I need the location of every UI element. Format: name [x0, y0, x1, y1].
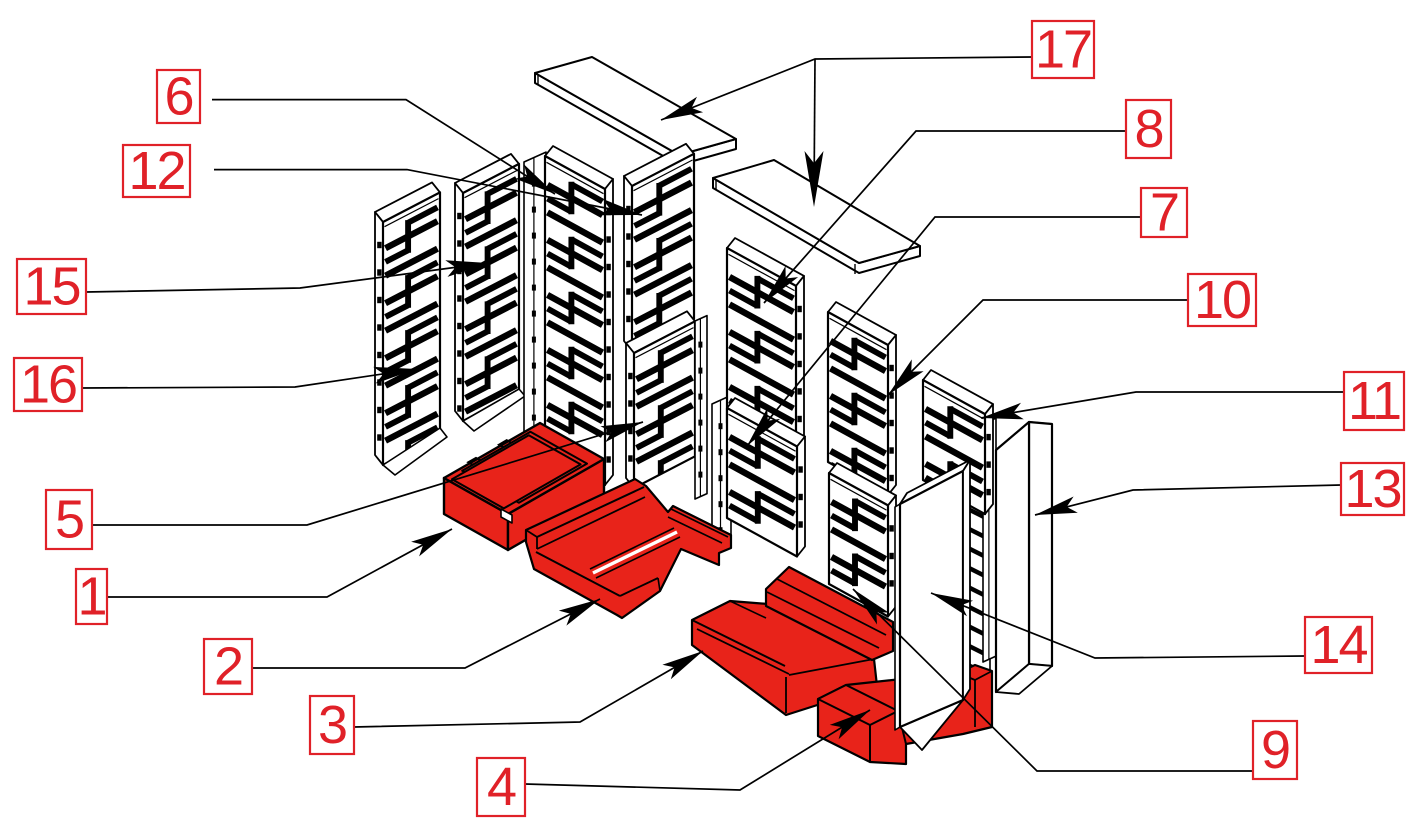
svg-text:12: 12	[128, 141, 184, 201]
svg-text:6: 6	[164, 67, 192, 127]
svg-text:16: 16	[20, 355, 76, 415]
svg-text:11: 11	[1348, 371, 1400, 431]
svg-text:8: 8	[1134, 99, 1162, 159]
svg-text:15: 15	[23, 257, 79, 317]
svg-text:9: 9	[1261, 720, 1289, 780]
svg-text:14: 14	[1310, 615, 1367, 675]
svg-text:7: 7	[1150, 183, 1178, 243]
svg-text:10: 10	[1194, 270, 1250, 330]
svg-text:3: 3	[318, 695, 346, 755]
svg-text:4: 4	[487, 757, 516, 817]
svg-text:5: 5	[55, 490, 83, 550]
svg-text:1: 1	[77, 567, 105, 627]
svg-text:17: 17	[1035, 20, 1091, 80]
svg-text:13: 13	[1344, 459, 1400, 519]
svg-text:2: 2	[214, 637, 242, 697]
